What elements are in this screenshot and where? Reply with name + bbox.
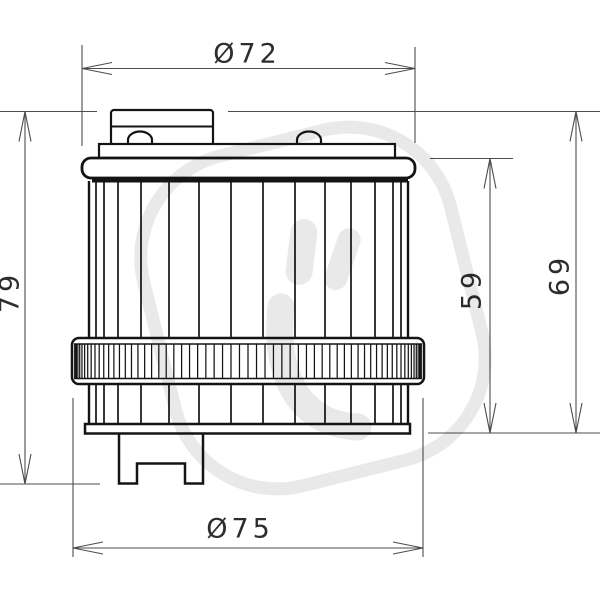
technical-drawing-canvas: Ø72 Ø75 79 59 69 xyxy=(0,0,600,600)
oil-filter-line-drawing xyxy=(0,0,600,600)
dimension-label-total-height: 79 xyxy=(0,271,24,313)
dimension-label-top-diameter: Ø72 xyxy=(213,41,281,68)
filter-body xyxy=(72,110,424,484)
dimension-label-body-height: 59 xyxy=(459,268,486,310)
dimension-label-cap-to-base-height: 69 xyxy=(547,254,574,296)
dimension-label-bottom-diameter: Ø75 xyxy=(206,516,274,543)
